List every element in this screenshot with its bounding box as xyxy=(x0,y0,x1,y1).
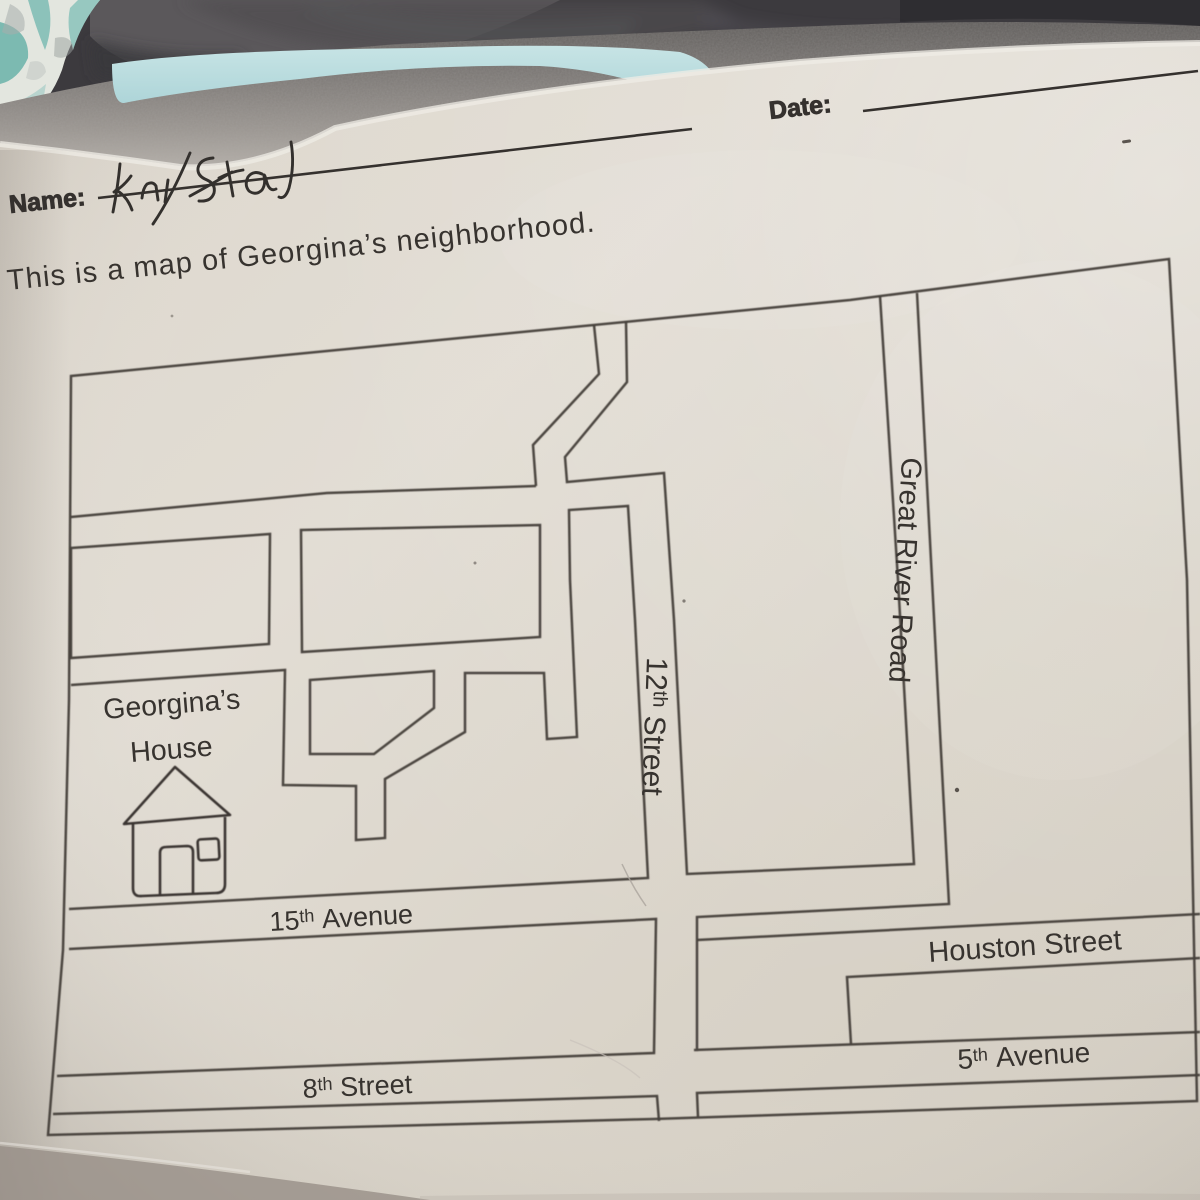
svg-text:12th Street: 12th Street xyxy=(635,657,673,797)
svg-text:House: House xyxy=(129,731,214,769)
